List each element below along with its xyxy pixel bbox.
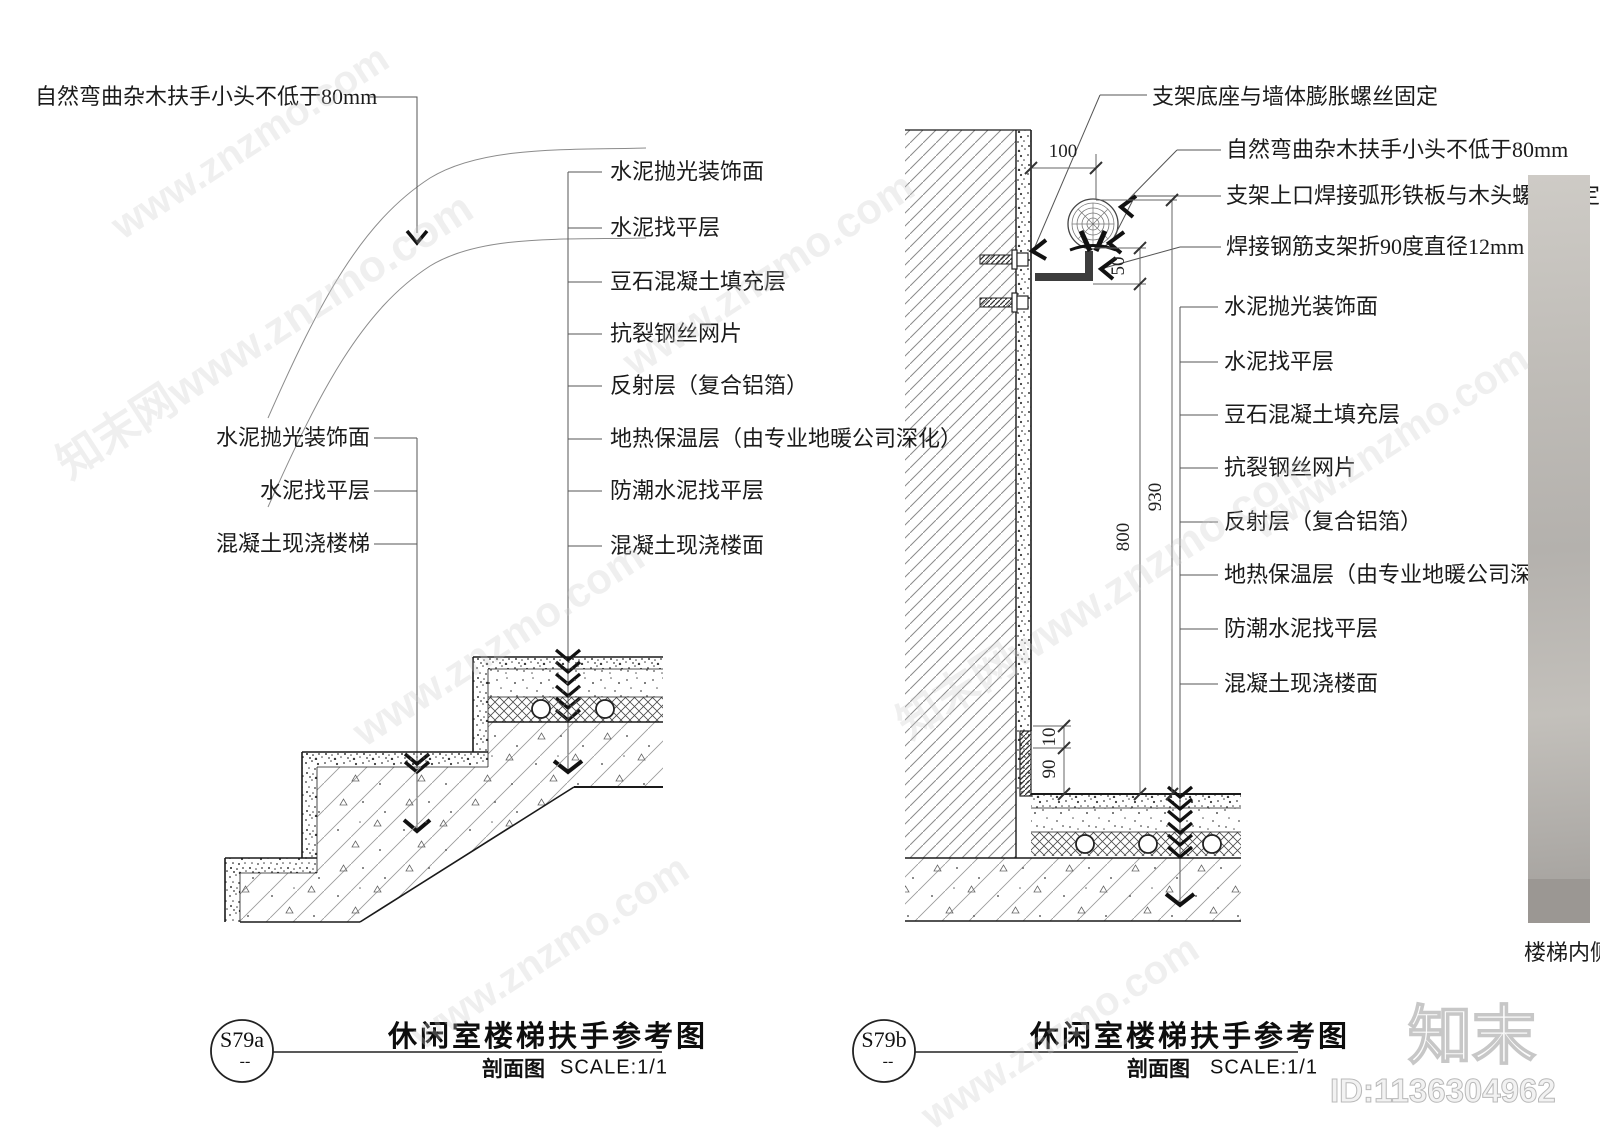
detail-code: S79b [861,1027,906,1053]
drawing-scale: SCALE:1/1 [1210,1057,1318,1080]
dim-10: 10 [1039,728,1061,747]
view-type: 剖面图 [1127,1053,1190,1083]
floor-layer-label: 水泥抛光装饰面 [610,161,764,183]
heating-pipe [1139,835,1157,853]
floor-layer-label: 地热保温层（由专业地暖公司深化） [1224,564,1576,586]
heating-pipe [1203,835,1221,853]
detail-code-sub: -- [240,1053,251,1071]
floor-layer-label: 抗裂钢丝网片 [1224,457,1356,479]
bracket-note-label: 支架底座与墙体膨胀螺丝固定 [1152,86,1438,108]
detail-code: S79a [220,1027,264,1053]
stair-layer-label: 混凝土现浇楼梯 [216,533,370,555]
photo-shadow [1528,879,1590,923]
floor-layer-label: 水泥找平层 [610,217,720,239]
dim-100: 100 [1049,141,1078,163]
floor-layer-label: 反射层（复合铝箔） [610,375,808,397]
floor-layer-label: 防潮水泥找平层 [1224,618,1378,640]
floor-layer-label: 防潮水泥找平层 [610,480,764,502]
dim-90: 90 [1039,760,1061,779]
photo-caption: 楼梯内侧 [1524,942,1600,964]
floor-layer-label: 豆石混凝土填充层 [610,271,786,293]
dim-50: 50 [1108,257,1130,276]
handrail-note-label: 自然弯曲杂木扶手小头不低于80mm [35,86,377,108]
drawing-title: 休闲室楼梯扶手参考图 [388,1013,708,1055]
stair-section-body [225,657,663,922]
skirting-board [1020,731,1031,796]
detail-code-sub: -- [883,1053,894,1071]
bracket-note-label: 自然弯曲杂木扶手小头不低于80mm [1226,139,1568,161]
heating-pipe [532,700,550,718]
cad-sheet: { "watermark": { "site": "www.znzmo.com"… [0,0,1600,1131]
note-leaders [1032,95,1221,279]
dim-930: 930 [1145,483,1167,512]
dimension-lines [1025,154,1178,800]
heating-pipe [596,700,614,718]
bracket-note-label: 焊接钢筋支架折90度直径12mm [1226,236,1524,258]
drawing-title: 休闲室楼梯扶手参考图 [1030,1013,1350,1055]
stair-layer-label: 水泥抛光装饰面 [216,427,370,449]
left-section-drawing [211,97,663,1082]
floor-layer-label: 混凝土现浇楼面 [610,535,764,557]
view-type: 剖面图 [482,1053,545,1083]
handrail-curve [268,148,646,507]
stair-layer-label: 水泥找平层 [260,480,370,502]
watermark-brand: 知末 [1408,985,1536,1077]
drawing-scale: SCALE:1/1 [560,1057,668,1080]
watermark-id: ID:1136304962 [1330,1072,1556,1110]
floor-layer-label: 水泥抛光装饰面 [1224,296,1378,318]
dim-800: 800 [1113,523,1135,552]
handrail-note-leader [370,97,427,243]
wall-section [905,130,1031,858]
floor-layer-label: 反射层（复合铝箔） [1224,511,1422,533]
floor-layer-label: 水泥找平层 [1224,351,1334,373]
reference-photo [1528,175,1590,923]
floor-layer-label: 抗裂钢丝网片 [610,323,742,345]
floor-layer-label: 地热保温层（由专业地暖公司深化） [610,428,962,450]
floor-layer-label: 豆石混凝土填充层 [1224,404,1400,426]
floor-layer-label: 混凝土现浇楼面 [1224,673,1378,695]
heating-pipe [1076,835,1094,853]
